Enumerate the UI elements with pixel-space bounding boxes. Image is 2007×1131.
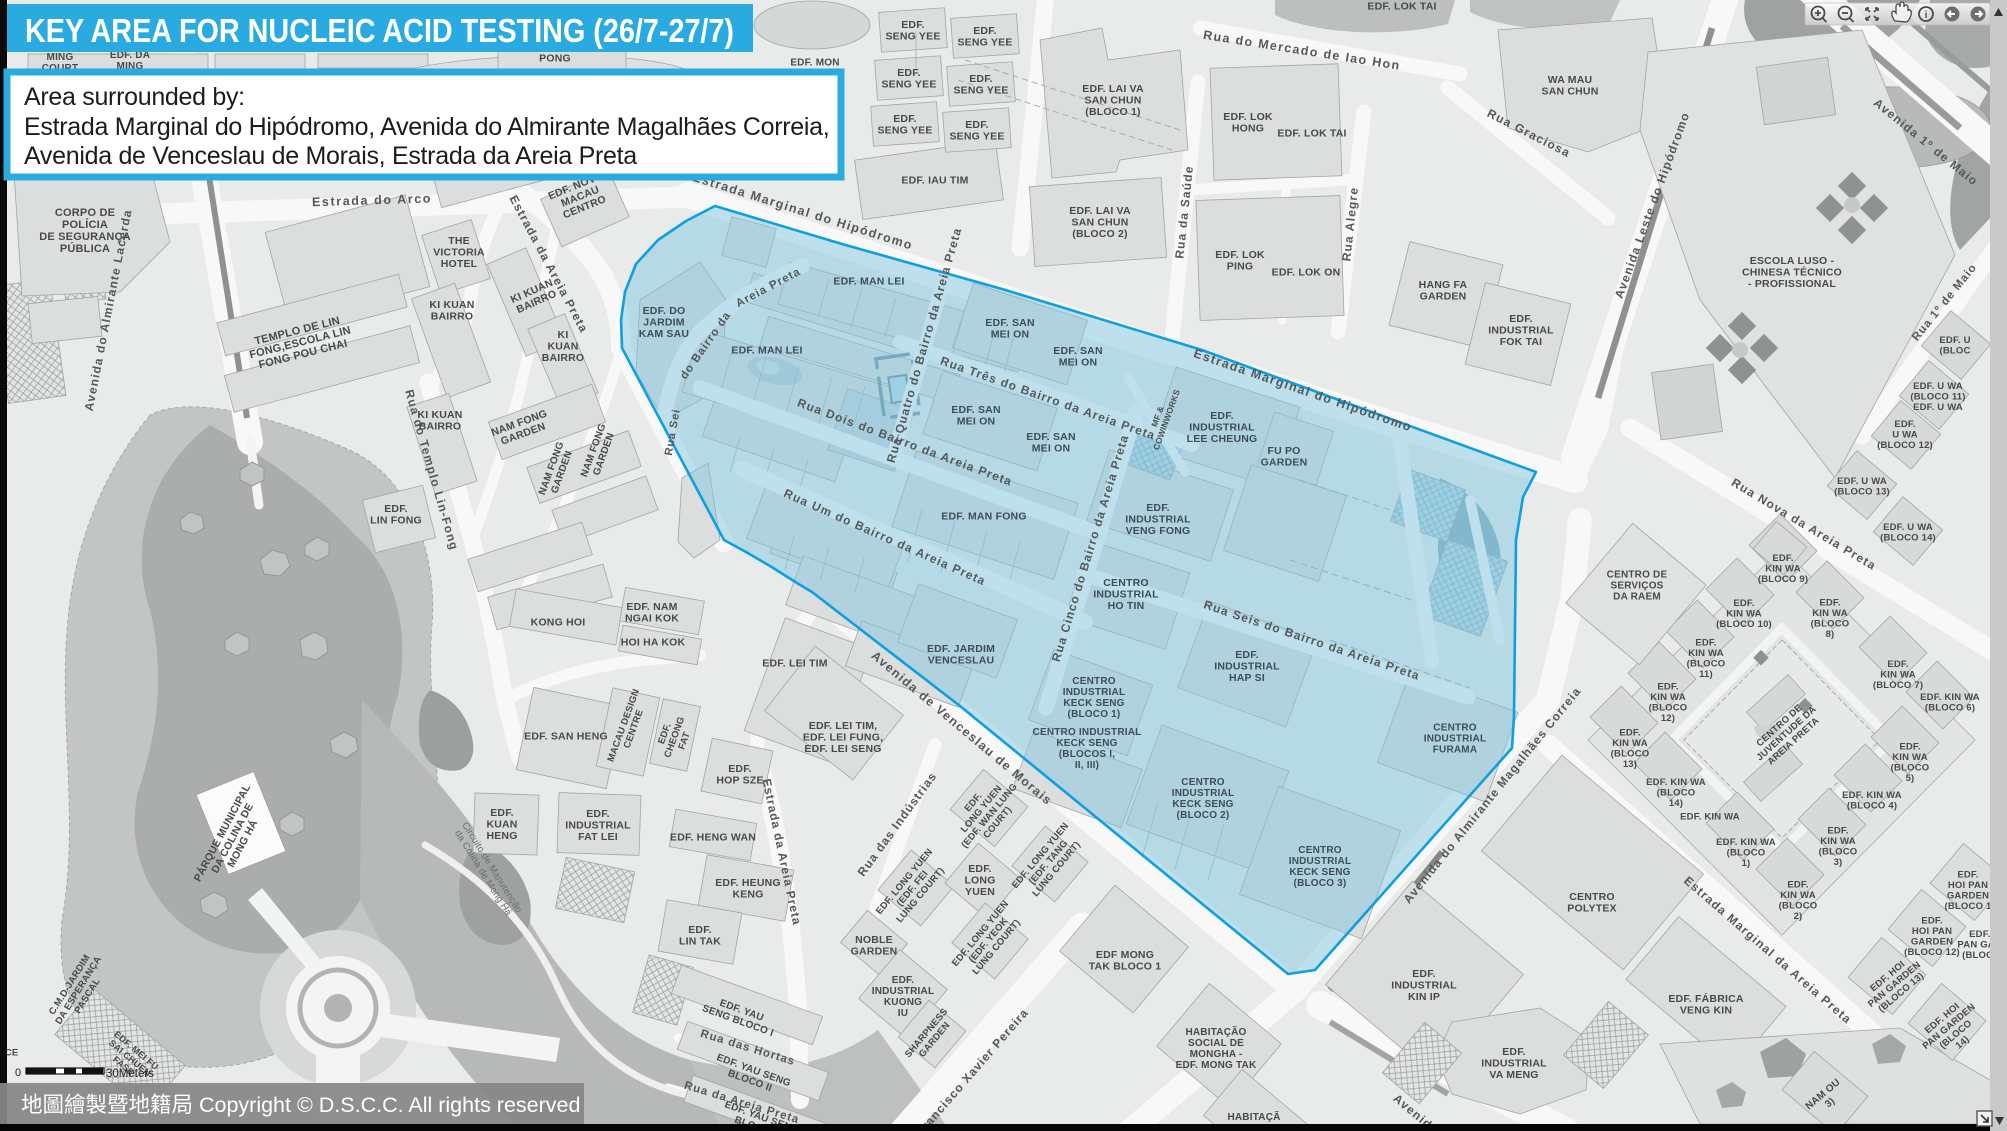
- svg-text:ESCOLA LUSO -CHINESA TÉCNICO-: ESCOLA LUSO -CHINESA TÉCNICO- PROFISSION…: [1742, 255, 1842, 290]
- svg-text:NOBLEGARDEN: NOBLEGARDEN: [851, 934, 898, 958]
- svg-text:CENTROPOLYTEX: CENTROPOLYTEX: [1567, 891, 1616, 915]
- svg-text:EDF. LAI VASAN CHUN(BLOCO 1): EDF. LAI VASAN CHUN(BLOCO 1): [1082, 83, 1144, 118]
- svg-text:EDF. JARDIMVENCESLAU: EDF. JARDIMVENCESLAU: [927, 643, 995, 667]
- svg-text:EDF. LEI TIM,EDF. LEI FUNG,EDF: EDF. LEI TIM,EDF. LEI FUNG,EDF. LEI SENG: [803, 720, 883, 755]
- svg-text:HANG FAGARDEN: HANG FAGARDEN: [1419, 279, 1468, 303]
- svg-text:EDF. LOK ON: EDF. LOK ON: [1272, 267, 1341, 279]
- svg-text:EDF.KUANHENG: EDF.KUANHENG: [486, 807, 517, 842]
- svg-text:EDF. KIN WA: EDF. KIN WA: [1680, 811, 1740, 822]
- svg-text:EDF. KIN WA(BLOCO 6): EDF. KIN WA(BLOCO 6): [1920, 692, 1980, 714]
- svg-text:PONG: PONG: [539, 53, 571, 65]
- svg-text:EDF. LOK TAI: EDF. LOK TAI: [1367, 1, 1436, 13]
- svg-text:EDF. SANMEI ON: EDF. SANMEI ON: [1053, 345, 1102, 369]
- svg-text:EDF. MAN FONG: EDF. MAN FONG: [941, 511, 1026, 523]
- svg-text:EDF. MON: EDF. MON: [790, 58, 839, 69]
- svg-text:EDF. SANMEI ON: EDF. SANMEI ON: [951, 404, 1000, 428]
- svg-text:EDF. U WA(BLOCO 11)EDF. U WA: EDF. U WA(BLOCO 11)EDF. U WA: [1910, 381, 1965, 413]
- svg-text:EDF. LAI VASAN CHUN(BLOCO 2): EDF. LAI VASAN CHUN(BLOCO 2): [1069, 205, 1131, 240]
- svg-text:EDF. SANMEI ON: EDF. SANMEI ON: [1026, 431, 1075, 455]
- svg-text:CENTRO DESERVIÇOSDA RAEM: CENTRO DESERVIÇOSDA RAEM: [1607, 570, 1668, 603]
- svg-text:EDF. IAU TIM: EDF. IAU TIM: [901, 175, 968, 187]
- svg-text:Avenida de Venceslau de Morais: Avenida de Venceslau de Morais, Estrada …: [24, 142, 637, 170]
- svg-text:i: i: [1925, 10, 1928, 21]
- svg-text:EDF. HENG WAN: EDF. HENG WAN: [670, 832, 756, 844]
- svg-text:0: 0: [15, 1067, 21, 1079]
- svg-text:Area surrounded by:: Area surrounded by:: [24, 83, 245, 111]
- svg-text:FU POGARDEN: FU POGARDEN: [1261, 445, 1308, 469]
- svg-text:KEY AREA FOR NUCLEIC ACID TEST: KEY AREA FOR NUCLEIC ACID TESTING (26/7-…: [25, 12, 734, 49]
- svg-text:KONG HOI: KONG HOI: [531, 617, 586, 629]
- svg-text:EDF. DOJARDIMKAM SAU: EDF. DOJARDIMKAM SAU: [639, 305, 689, 340]
- svg-text:HOI HA KOK: HOI HA KOK: [621, 637, 686, 649]
- svg-text:EDF. SAN HENG: EDF. SAN HENG: [524, 731, 608, 743]
- svg-text:KI KUANBAIRRO: KI KUANBAIRRO: [417, 409, 462, 433]
- svg-text:EDF. MAN LEI: EDF. MAN LEI: [833, 276, 904, 288]
- svg-text:EDF. U WA(BLOCO 13): EDF. U WA(BLOCO 13): [1834, 476, 1890, 498]
- svg-text:EDF. NAMNGAI KOK: EDF. NAMNGAI KOK: [625, 601, 679, 625]
- svg-text:WA MAUSAN CHUN: WA MAUSAN CHUN: [1541, 74, 1598, 98]
- svg-text:EDF. LEI TIM: EDF. LEI TIM: [762, 658, 827, 670]
- svg-text:Estrada Marginal do Hipódromo,: Estrada Marginal do Hipódromo, Avenida d…: [24, 113, 829, 141]
- svg-text:EDF.LONGYUEN: EDF.LONGYUEN: [964, 863, 995, 898]
- svg-text:EDF. U(BLOC: EDF. U(BLOC: [1939, 335, 1970, 357]
- svg-text:地圖繪製暨地籍局 Copyright © D.S.C.C.: 地圖繪製暨地籍局 Copyright © D.S.C.C. All rights…: [21, 1093, 580, 1117]
- svg-text:EDF. KIN WA(BLOCO 4): EDF. KIN WA(BLOCO 4): [1842, 790, 1902, 812]
- svg-text:EDF. U WA(BLOCO 14): EDF. U WA(BLOCO 14): [1880, 522, 1936, 544]
- svg-text:EDF MONGTAK BLOCO 1: EDF MONGTAK BLOCO 1: [1089, 949, 1162, 973]
- svg-text:30Meters: 30Meters: [106, 1068, 154, 1080]
- svg-text:KI KUANBAIRRO: KI KUANBAIRRO: [429, 299, 474, 323]
- svg-text:EDF. MAN LEI: EDF. MAN LEI: [731, 345, 802, 357]
- svg-text:EDF. LOK TAI: EDF. LOK TAI: [1277, 128, 1346, 140]
- svg-text:EDF. SANMEI ON: EDF. SANMEI ON: [985, 317, 1034, 341]
